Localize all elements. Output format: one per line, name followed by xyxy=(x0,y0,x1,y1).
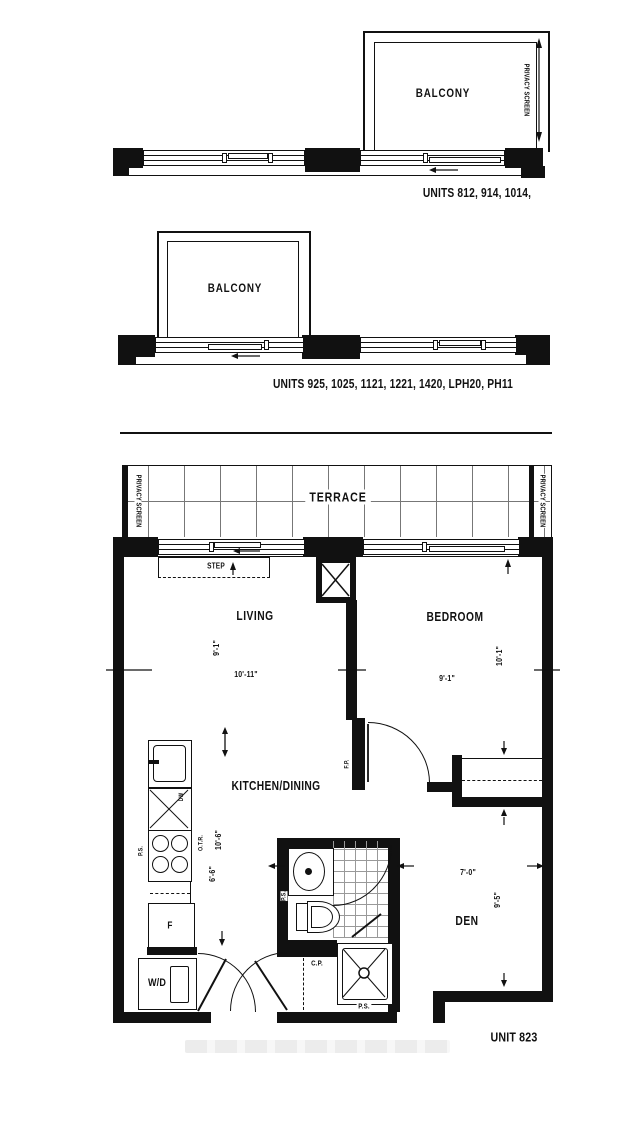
arrowhead xyxy=(429,167,436,173)
arrowhead xyxy=(231,353,238,359)
washer-dryer-label: W/D xyxy=(148,977,166,989)
window-mullion xyxy=(268,153,273,163)
window-b-left-slider xyxy=(155,337,304,353)
wall-den-bottom xyxy=(433,991,553,1002)
wall-block xyxy=(515,335,550,355)
wall-block xyxy=(521,166,545,178)
privacy-screen-bar-right xyxy=(529,466,534,537)
window-mullion xyxy=(433,340,438,350)
wall-den-bottom-return xyxy=(433,991,445,1023)
stove-burner xyxy=(171,835,188,852)
counter-divider-dash xyxy=(150,893,190,894)
wall-block xyxy=(303,537,363,557)
band-a-sill-line xyxy=(113,175,545,176)
wall-bath-left xyxy=(277,838,288,940)
diagram-a-caption: UNITS 812, 914, 1014, xyxy=(423,186,531,200)
terrace-privacy-screen-right-label: PRIVACY SCREEN xyxy=(539,474,546,528)
den-width-dim: 7'-0" xyxy=(460,867,476,877)
stove-burner xyxy=(152,835,169,852)
closet-rod-line xyxy=(462,780,542,781)
floorplan-sheet: BALCONY PRIVACY SCREEN UNITS 812, 914, 1… xyxy=(0,0,640,1125)
bedroom-label: BEDROOM xyxy=(427,610,484,624)
shower-pan xyxy=(342,948,388,1000)
otr-label: O.T.R. xyxy=(198,835,205,851)
wall-bottom-left xyxy=(113,1012,211,1023)
arrowhead xyxy=(501,809,507,816)
terrace-right-edge xyxy=(551,465,552,537)
bedroom-door-arc xyxy=(368,722,430,783)
wall-living-bedroom xyxy=(346,600,357,720)
wall-block xyxy=(305,148,360,172)
living-label: LIVING xyxy=(236,609,273,623)
bedroom-depth-dim: 10'-1" xyxy=(494,646,504,666)
bedroom-width-dim: 9'-1" xyxy=(439,673,455,683)
wall-left xyxy=(113,537,124,1023)
watermark-smudge xyxy=(185,1040,450,1053)
den-depth-dim: 9'-5" xyxy=(492,892,502,908)
wall-block xyxy=(113,148,143,168)
window-a-right-slider xyxy=(360,150,505,166)
balcony-a-privacy-screen-label: PRIVACY SCREEN xyxy=(523,64,530,117)
closet-shelf-line xyxy=(462,758,542,759)
arrowhead xyxy=(222,727,228,734)
fp-label: F.P. xyxy=(344,759,351,768)
window-living-slider xyxy=(158,539,305,555)
balcony-a-label: BALCONY xyxy=(416,86,470,100)
arrowhead xyxy=(501,980,507,987)
dishwasher xyxy=(148,788,192,832)
cp-closet-dashed-line xyxy=(303,958,304,1010)
counter-end-wall xyxy=(147,947,197,955)
wall-right xyxy=(542,537,553,1002)
band-b-sill-line xyxy=(118,364,548,365)
shaft-interior xyxy=(322,563,350,597)
unit-caption: UNIT 823 xyxy=(491,1030,538,1045)
window-mullion xyxy=(422,542,427,552)
arrowhead xyxy=(219,939,225,946)
window-b-right xyxy=(360,337,517,353)
kitchen-width-dim: 6'-6" xyxy=(207,866,217,882)
ps-bathroom-label: P.S. xyxy=(281,891,288,901)
window-mullion xyxy=(264,340,269,350)
living-width-dim: 10'-11" xyxy=(234,669,258,679)
arrowhead xyxy=(268,863,275,869)
terrace-privacy-screen-left-label: PRIVACY SCREEN xyxy=(135,474,142,528)
kitchen-faucet xyxy=(149,760,159,764)
wall-block xyxy=(505,148,543,168)
fridge-label: F xyxy=(167,921,172,932)
living-depth-dim: 9'-1" xyxy=(211,640,221,656)
diagram-b-caption: UNITS 925, 1025, 1121, 1221, 1420, LPH20… xyxy=(273,377,513,391)
window-bedroom-slider xyxy=(363,539,520,555)
window-slider-panel xyxy=(429,546,505,552)
stove-burner xyxy=(152,856,169,873)
kitchen-depth-dim: 10'-6" xyxy=(213,830,223,850)
window-slider-panel xyxy=(208,344,262,350)
window-mullion xyxy=(222,153,227,163)
dw-label: DW xyxy=(179,793,185,802)
privacy-screen-bar-left xyxy=(123,466,128,537)
wall-block xyxy=(118,335,155,357)
den-label: DEN xyxy=(455,914,478,928)
window-a-left xyxy=(143,150,305,166)
window-mullion xyxy=(423,153,428,163)
section-divider-line xyxy=(120,432,552,434)
entry-door-arc xyxy=(230,952,288,1011)
stove-burner xyxy=(171,856,188,873)
arrowhead xyxy=(505,559,511,567)
vanity-drain xyxy=(305,868,312,875)
terrace-label: TERRACE xyxy=(305,490,370,505)
arrowhead xyxy=(501,748,507,755)
balcony-b-label: BALCONY xyxy=(208,281,262,295)
wall-block xyxy=(302,335,360,359)
window-slider-panel xyxy=(439,340,481,346)
closet-bottom-wall xyxy=(452,797,542,807)
wall-block xyxy=(113,166,129,175)
kitchen-dining-label: KITCHEN/DINING xyxy=(232,779,321,793)
window-mullion xyxy=(209,542,214,552)
window-mullion xyxy=(481,340,486,350)
washer-dryer-door xyxy=(170,966,189,1003)
window-slider-panel xyxy=(429,157,501,163)
ps-kitchen-label: P.S. xyxy=(138,846,145,856)
cp-label: C.P. xyxy=(311,959,323,968)
wall-fp-chase xyxy=(352,718,365,790)
arrowhead xyxy=(222,750,228,757)
wall-bottom-mid xyxy=(277,1012,397,1023)
ps-shower-label: P.S. xyxy=(357,1002,372,1011)
step-label: STEP xyxy=(207,562,225,571)
window-slider-panel xyxy=(228,153,268,159)
wall-block xyxy=(118,355,136,364)
window-slider-panel xyxy=(214,542,261,548)
